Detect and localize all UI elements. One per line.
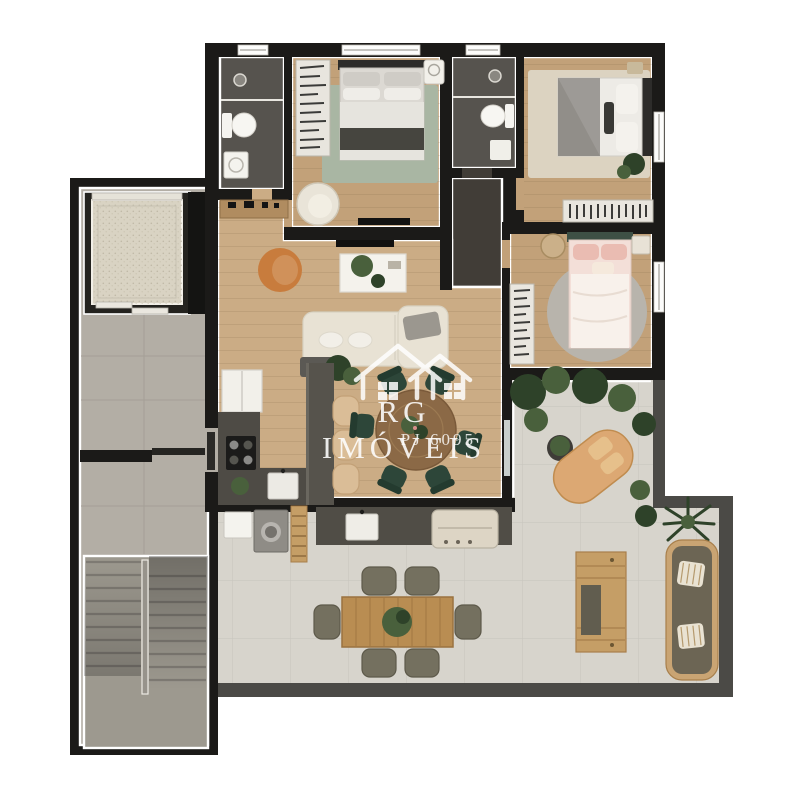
wall-bath1-east [284, 43, 292, 200]
bed-2-pillow-a [616, 84, 638, 114]
outdoor-sofa [666, 540, 718, 680]
floor-plan-render: RG IMÓVEIS PJ 6095 [0, 0, 800, 800]
bed-2-headboard [642, 78, 652, 156]
wall-bath1-south-b [272, 189, 284, 200]
parapet-garden-east [652, 380, 665, 500]
watermark-registration-text: PJ 6095 [348, 430, 476, 450]
toilet-1-tank [222, 113, 232, 138]
wall-bedroom1-south [284, 227, 452, 240]
wardrobe-rack-1 [296, 60, 330, 156]
wall-bath2-east [516, 43, 524, 178]
kitchen-faucet [281, 469, 285, 473]
wall-north [205, 43, 665, 57]
coffee-table-plant-b [371, 274, 385, 288]
laundry-tub [224, 512, 252, 538]
shower-head-2-icon [489, 70, 501, 82]
bath-2-door-gap [462, 168, 492, 178]
console-knob-a [610, 558, 614, 562]
bed-1-throw [340, 128, 424, 150]
stairwell [84, 556, 208, 748]
bedroom-hallway-floor [452, 178, 502, 287]
bed-3-accent-pillow [592, 262, 614, 275]
kitchen-sink [268, 473, 298, 499]
cooktop [226, 436, 256, 470]
parapet-bottom [218, 683, 733, 697]
toilet-1-bowl [232, 113, 256, 137]
elevator-door-left [96, 302, 132, 308]
corridor-divider-wall [80, 450, 152, 462]
wall-bath2-south-a [452, 168, 462, 178]
console-tray [581, 585, 601, 635]
bed-3-pillow-b [601, 244, 627, 260]
bath-1-door-gap [252, 189, 272, 200]
outdoor-console [576, 552, 626, 652]
elevator-car-texture [92, 200, 182, 304]
nightstand-3 [632, 236, 650, 254]
pot-plant-near-sofa [635, 505, 657, 527]
armchair-bedroom-1-seat [308, 194, 332, 218]
tv-rack-bedroom-1 [358, 218, 410, 225]
parapet-right [719, 496, 733, 697]
wall-bath2-south-b [492, 168, 518, 178]
stair-divider-rail [142, 560, 148, 694]
stair-shading-left [84, 556, 141, 676]
bed-2-accent-pillow [604, 102, 614, 134]
bed-1-pillow-c [343, 88, 380, 100]
toilet-2-tank [505, 104, 514, 128]
nightstand-2 [627, 62, 643, 74]
armchair-orange-seat [272, 255, 298, 285]
plant-bedroom-2b [617, 165, 631, 179]
corner-basin [424, 60, 444, 84]
wall-bedroom3-west-b [502, 268, 510, 380]
coffee-table [340, 254, 406, 292]
elevator-sill-top [92, 193, 182, 200]
elevator-door-right [132, 308, 168, 314]
coffee-table-book [388, 261, 401, 269]
bed-1-pillow-b [384, 72, 421, 86]
wall-east [652, 43, 665, 380]
coffee-table-plant-a [351, 255, 373, 277]
bed-3-duvet [571, 274, 629, 348]
washer-door-glass [265, 526, 277, 538]
wall-bath1-south-a [218, 189, 252, 200]
outdoor-kitchen [316, 507, 512, 548]
sofa-pillow-a [319, 332, 343, 348]
wall-west-upper [205, 43, 218, 428]
corridor-door-leaf [152, 448, 208, 455]
toilet-2-bowl [481, 105, 505, 127]
bath-2-mat [490, 140, 511, 160]
wall-bedroom3-west-a [502, 234, 510, 240]
outdoor-centerpiece-plant-b [396, 610, 410, 624]
bedroom-2-door-gap [516, 178, 524, 210]
barbecue-grill [432, 510, 498, 548]
basket-bedroom-3 [541, 234, 565, 258]
shower-head-1-icon [234, 74, 246, 86]
bed-1-pillow-a [343, 72, 380, 86]
outdoor-faucet [360, 510, 364, 514]
bed-3-pillow-a [573, 244, 599, 260]
stair-shading-right [149, 556, 208, 690]
entry-door-leaf-2 [207, 432, 215, 470]
sofa-pillow-b [348, 332, 372, 348]
bedroom-3-door-gap [502, 240, 510, 268]
bed-2-pillow-b [616, 122, 638, 152]
left-wing [80, 188, 208, 748]
ladder-shelf [291, 506, 307, 562]
kitchen-plant [231, 477, 249, 495]
console-knob-b [610, 643, 614, 647]
wardrobe-rack-3 [510, 284, 534, 364]
outdoor-sink [346, 514, 378, 540]
tv-living [336, 240, 394, 247]
vanity-1 [224, 152, 248, 178]
bed-1-pillow-d [384, 88, 421, 100]
elevator [84, 192, 190, 314]
